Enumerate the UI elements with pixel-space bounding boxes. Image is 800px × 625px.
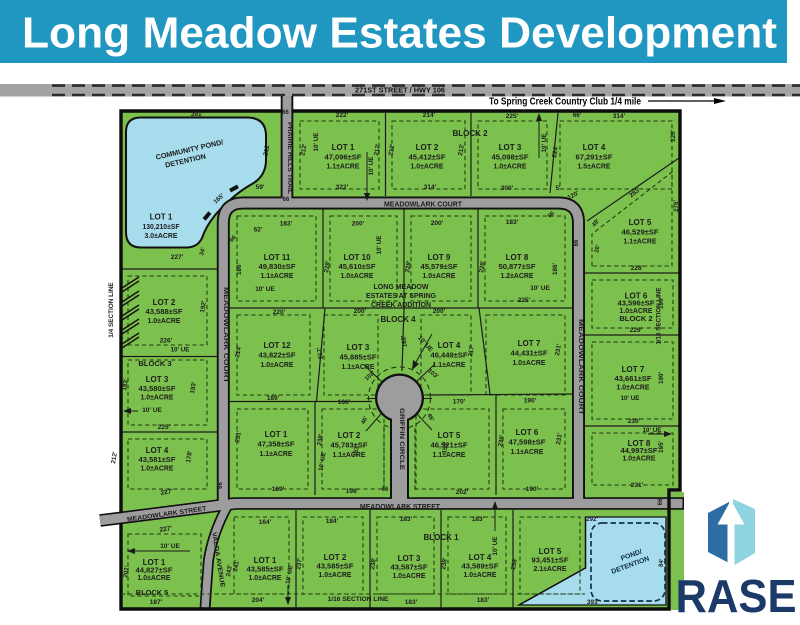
svg-text:LOT 11: LOT 11 [264,253,291,262]
svg-text:1.0±ACRE: 1.0±ACRE [423,271,456,280]
svg-text:LONG MEADOW: LONG MEADOW [374,282,429,291]
svg-text:66: 66 [382,487,389,493]
svg-text:190': 190' [524,398,537,405]
svg-text:1.5±ACRE: 1.5±ACRE [578,162,611,171]
svg-text:43,822±SF: 43,822±SF [259,351,297,360]
svg-text:LOT 3: LOT 3 [347,343,370,352]
svg-text:10' UE: 10' UE [530,285,550,292]
svg-text:5': 5' [556,186,561,192]
svg-text:45,579±SF: 45,579±SF [421,262,459,271]
svg-text:184': 184' [326,518,339,525]
svg-text:1.1±ACRE: 1.1±ACRE [624,237,657,246]
svg-text:276': 276' [673,200,680,213]
svg-text:190': 190' [526,486,539,493]
svg-text:225': 225' [518,297,531,304]
svg-text:LOT 5: LOT 5 [629,218,652,227]
svg-text:183': 183' [405,599,418,606]
svg-text:LOT 12: LOT 12 [263,341,291,350]
svg-text:67,291±SF: 67,291±SF [576,152,614,161]
svg-text:1.1±ACRE: 1.1±ACRE [342,362,375,371]
svg-text:1.0±ACRE: 1.0±ACRE [148,316,181,325]
svg-text:10' UE: 10' UE [376,236,383,255]
svg-text:LOT 1: LOT 1 [265,430,288,439]
svg-text:1/4 SECTION LINE: 1/4 SECTION LINE [108,282,115,338]
svg-text:43,588±SF: 43,588±SF [146,307,184,316]
svg-text:45,610±SF: 45,610±SF [339,262,377,271]
svg-text:LOT 8: LOT 8 [506,253,529,262]
svg-text:231': 231' [631,482,644,489]
svg-text:43,581±SF: 43,581±SF [139,455,177,464]
svg-text:BLOCK 4: BLOCK 4 [380,315,416,324]
svg-text:47,096±SF: 47,096±SF [325,152,363,161]
svg-text:10' UE: 10' UE [492,537,499,556]
svg-text:204': 204' [252,597,265,604]
svg-text:Long Meadow Estates Developmen: Long Meadow Estates Development [22,9,777,58]
svg-text:1.0±ACRE: 1.0±ACRE [617,383,650,392]
svg-text:66: 66 [218,482,224,489]
svg-text:47,598±SF: 47,598±SF [509,438,547,447]
svg-text:189': 189' [272,486,285,493]
svg-text:220': 220' [273,309,286,316]
svg-text:PRAIRIE HILLS TRAIL: PRAIRIE HILLS TRAIL [286,122,293,194]
svg-text:130,210±SF: 130,210±SF [143,222,181,231]
svg-text:43,661±SF: 43,661±SF [615,374,653,383]
svg-text:1.1±ACRE: 1.1±ACRE [433,360,466,369]
svg-text:314': 314' [613,113,626,120]
svg-text:1.0±ACRE: 1.0±ACRE [141,393,174,402]
svg-text:1.0±ACRE: 1.0±ACRE [319,570,352,579]
svg-text:1.1±ACRE: 1.1±ACRE [327,162,360,171]
svg-text:LOT 2: LOT 2 [338,431,361,440]
svg-text:MEADOWLARK COURT: MEADOWLARK COURT [577,319,584,416]
svg-text:1.1±ACRE: 1.1±ACRE [260,449,293,458]
svg-text:66: 66 [282,110,289,116]
svg-text:47,358±SF: 47,358±SF [258,440,296,449]
svg-text:164': 164' [259,519,272,526]
svg-text:LOT 7: LOT 7 [518,339,541,348]
svg-text:1.0±ACRE: 1.0±ACRE [623,453,656,462]
svg-text:LOT 4: LOT 4 [438,341,461,350]
svg-text:84': 84' [658,558,666,567]
svg-text:RASE: RASE [676,570,797,622]
svg-text:59': 59' [256,184,265,191]
svg-text:MEADOWLARK COURT: MEADOWLARK COURT [222,287,229,384]
svg-text:1.0±ACRE: 1.0±ACRE [494,162,527,171]
svg-text:166': 166' [338,399,351,406]
svg-text:314': 314' [424,184,437,191]
svg-text:1.0±ACRE: 1.0±ACRE [341,271,374,280]
svg-text:226': 226' [160,338,173,345]
svg-text:LOT 3: LOT 3 [146,375,169,384]
svg-text:45,783±SF: 45,783±SF [331,441,369,450]
svg-text:1.0±ACRE: 1.0±ACRE [513,358,546,367]
svg-text:120': 120' [670,130,677,143]
svg-text:1.2±ACRE: 1.2±ACRE [501,271,534,280]
svg-text:227': 227' [171,254,184,261]
svg-text:LOT 3: LOT 3 [499,143,522,152]
svg-text:195': 195' [658,441,665,454]
svg-text:225': 225' [506,113,519,120]
svg-text:BLOCK 3: BLOCK 3 [138,359,171,368]
svg-text:10' UE: 10' UE [541,134,548,153]
svg-text:186': 186' [236,263,243,276]
svg-text:271ST STREET / HWY 106: 271ST STREET / HWY 106 [355,88,445,95]
svg-text:10' UE: 10' UE [313,133,320,152]
svg-text:LOT 5: LOT 5 [438,431,461,440]
svg-text:BLOCK 5: BLOCK 5 [136,588,168,597]
svg-text:LOT 10: LOT 10 [343,253,371,262]
svg-text:170': 170' [453,399,466,406]
svg-text:292': 292' [586,516,599,523]
svg-text:229': 229' [630,327,643,334]
svg-text:MEADOWLARK STREET: MEADOWLARK STREET [360,504,441,511]
svg-text:LOT 9: LOT 9 [428,253,451,262]
svg-text:393': 393' [587,599,600,606]
svg-text:To Spring Creek Country Club 1: To Spring Creek Country Club 1/4 mile [489,97,641,108]
svg-text:LOT 1: LOT 1 [150,213,173,222]
svg-text:391': 391' [191,111,204,118]
svg-text:1.1±ACRE: 1.1±ACRE [333,450,366,459]
svg-text:228': 228' [631,265,644,272]
svg-text:183': 183' [506,219,519,226]
svg-text:66': 66' [573,112,582,119]
svg-text:198': 198' [346,488,359,495]
svg-text:190': 190' [658,372,665,385]
svg-text:200': 200' [352,221,365,228]
svg-text:1.0±ACRE: 1.0±ACRE [393,571,426,580]
svg-text:LOT 6: LOT 6 [516,428,539,437]
svg-text:LOT 4: LOT 4 [583,143,606,152]
svg-text:10' UE: 10' UE [368,157,375,176]
svg-text:187': 187' [150,599,163,606]
svg-text:1.0±ACRE: 1.0±ACRE [261,360,294,369]
svg-text:46,449±SF: 46,449±SF [431,351,469,360]
svg-text:BLOCK 2: BLOCK 2 [619,314,652,323]
svg-text:202': 202' [456,489,469,496]
svg-text:183': 183' [477,597,490,604]
svg-text:BLOCK 2: BLOCK 2 [452,129,488,138]
svg-text:300': 300' [501,185,514,192]
svg-text:BLOCK 1: BLOCK 1 [423,533,459,542]
svg-text:1.0±ACRE: 1.0±ACRE [138,573,171,582]
svg-text:1.1±ACRE: 1.1±ACRE [261,271,294,280]
svg-text:225': 225' [158,424,171,431]
svg-text:200': 200' [433,308,446,315]
svg-text:10' UE: 10' UE [643,427,662,434]
svg-text:MEADOWLARK COURT: MEADOWLARK COURT [384,202,463,209]
svg-text:186': 186' [552,263,559,276]
svg-text:62': 62' [254,227,263,234]
svg-text:50,877±SF: 50,877±SF [499,262,537,271]
svg-text:1/16 SECTION LINE: 1/16 SECTION LINE [656,287,663,344]
svg-text:10' UE: 10' UE [255,286,275,293]
svg-text:1.0±ACRE: 1.0±ACRE [141,464,174,473]
svg-text:66: 66 [283,197,290,203]
svg-text:66: 66 [574,239,580,246]
svg-text:222': 222' [336,112,349,119]
svg-text:GRIFFIN CIRCLE: GRIFFIN CIRCLE [398,408,405,471]
svg-text:189': 189' [267,395,280,402]
svg-text:2.1±ACRE: 2.1±ACRE [534,564,567,573]
svg-text:190': 190' [658,297,665,310]
svg-text:ESTATES AT SPRING: ESTATES AT SPRING [366,291,436,300]
svg-text:322': 322' [336,184,349,191]
svg-text:10' UE: 10' UE [160,543,180,550]
svg-text:1/16 SECTION LINE: 1/16 SECTION LINE [328,596,389,603]
svg-text:1.0±ACRE: 1.0±ACRE [249,573,282,582]
svg-text:49,830±SF: 49,830±SF [259,262,297,271]
svg-text:1.1±ACRE: 1.1±ACRE [433,450,466,459]
svg-text:230': 230' [628,418,641,425]
svg-text:LOT 4: LOT 4 [146,446,169,455]
svg-text:1.0±ACRE: 1.0±ACRE [411,162,444,171]
svg-text:3.0±ACRE: 3.0±ACRE [145,231,178,240]
svg-text:1.1±ACRE: 1.1±ACRE [511,447,544,456]
svg-text:200': 200' [354,308,367,315]
svg-text:183': 183' [472,516,485,523]
svg-text:10' UE: 10' UE [171,347,190,354]
svg-text:46,529±SF: 46,529±SF [622,227,660,236]
svg-text:LOT 1: LOT 1 [332,143,355,152]
svg-text:183': 183' [280,221,293,228]
svg-text:44,431±SF: 44,431±SF [511,349,549,358]
svg-text:45,885±SF: 45,885±SF [340,353,378,362]
svg-text:66: 66 [658,498,664,505]
svg-text:200': 200' [431,220,444,227]
svg-text:CREEK ADDITION: CREEK ADDITION [371,300,431,309]
svg-text:43,580±SF: 43,580±SF [139,384,177,393]
svg-text:LOT 7: LOT 7 [622,365,645,374]
svg-text:45,098±SF: 45,098±SF [492,152,530,161]
svg-text:LOT 2: LOT 2 [416,143,439,152]
svg-text:183': 183' [400,516,413,523]
svg-text:1.0±ACRE: 1.0±ACRE [464,570,497,579]
svg-text:45,412±SF: 45,412±SF [409,152,447,161]
svg-text:214': 214' [423,112,436,119]
svg-text:10' UE: 10' UE [142,407,162,414]
svg-text:10' UE: 10' UE [621,395,640,402]
svg-text:LOT 2: LOT 2 [153,298,176,307]
